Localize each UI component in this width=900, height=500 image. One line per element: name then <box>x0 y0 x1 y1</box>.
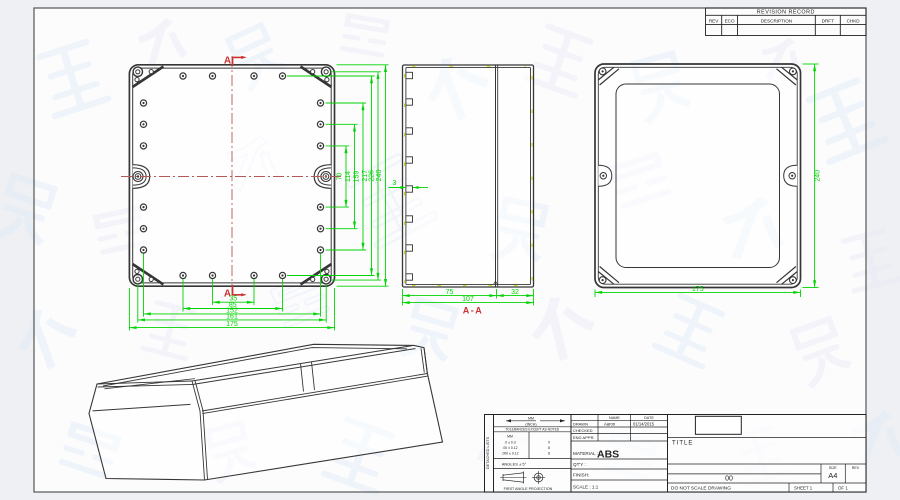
svg-text:.000 ± 0.12: .000 ± 0.12 <box>502 451 519 455</box>
svg-text:240: 240 <box>815 170 822 182</box>
svg-text:DETACHED LISTS: DETACHED LISTS <box>486 436 490 469</box>
svg-text:.00 ± 0.12: .00 ± 0.12 <box>502 446 517 450</box>
svg-text:CHKD: CHKD <box>847 18 861 23</box>
svg-text:161: 161 <box>226 313 238 320</box>
svg-text:REV: REV <box>709 18 719 23</box>
svg-text:3: 3 <box>393 180 397 187</box>
svg-text:DO NOT SCALE DRAWING: DO NOT SCALE DRAWING <box>671 485 731 491</box>
svg-text:REV: REV <box>852 466 860 470</box>
svg-text:8: 8 <box>548 446 550 450</box>
svg-text:FINISH:: FINISH: <box>573 473 589 478</box>
svg-text:A-A: A-A <box>463 306 484 316</box>
svg-text:CHECKED: CHECKED <box>573 428 593 433</box>
svg-text:DATE: DATE <box>644 416 654 420</box>
svg-text:QT'Y :: QT'Y : <box>573 462 586 467</box>
svg-text:8: 8 <box>548 451 550 455</box>
svg-text:175: 175 <box>692 286 704 293</box>
svg-text:A4: A4 <box>828 471 837 480</box>
svg-text:01/14/2015: 01/14/2015 <box>633 422 655 427</box>
svg-text:REVISION RECORD: REVISION RECORD <box>757 10 815 16</box>
svg-text:MM: MM <box>528 416 534 420</box>
svg-text:70: 70 <box>337 173 344 181</box>
svg-text:SCALE : 1:1: SCALE : 1:1 <box>573 485 599 490</box>
svg-text:MM: MM <box>507 434 513 438</box>
svg-text:NAME: NAME <box>609 416 620 420</box>
svg-text:OF 1: OF 1 <box>838 485 848 490</box>
svg-text:114: 114 <box>345 171 352 182</box>
svg-text:240: 240 <box>376 170 383 182</box>
svg-text:107: 107 <box>462 296 474 303</box>
svg-text:226: 226 <box>369 170 376 182</box>
svg-text:DRAWN: DRAWN <box>573 422 588 427</box>
svg-text:SIZE: SIZE <box>829 466 838 470</box>
svg-text:00: 00 <box>725 476 733 483</box>
svg-text:MATERIAL :: MATERIAL : <box>573 451 598 456</box>
svg-text:159: 159 <box>354 171 361 183</box>
svg-text:SHEET 1: SHEET 1 <box>794 485 813 490</box>
svg-text:A: A <box>224 56 231 67</box>
svg-text:Aaron: Aaron <box>604 422 616 427</box>
svg-text:32: 32 <box>511 289 519 296</box>
svg-text:TITLE: TITLE <box>672 441 693 447</box>
svg-text:(INCH): (INCH) <box>525 422 536 426</box>
svg-text:75: 75 <box>446 289 454 296</box>
svg-text:FIRST ANGLE PROJECTION: FIRST ANGLE PROJECTION <box>504 487 553 491</box>
svg-text:ENG APPR.: ENG APPR. <box>573 435 595 440</box>
svg-text:DESCRIPTION: DESCRIPTION <box>761 18 792 23</box>
svg-text:TOLERANCES EXCEPT AS NOTED: TOLERANCES EXCEPT AS NOTED <box>505 428 560 432</box>
svg-text:ECO: ECO <box>725 18 735 23</box>
svg-text:ANGLES ± 5°: ANGLES ± 5° <box>502 462 527 467</box>
svg-text:DRFT: DRFT <box>822 18 834 23</box>
svg-text:175: 175 <box>226 321 238 328</box>
svg-text:.0 ± 0.3: .0 ± 0.3 <box>504 440 515 444</box>
svg-text:ABS: ABS <box>597 449 619 461</box>
